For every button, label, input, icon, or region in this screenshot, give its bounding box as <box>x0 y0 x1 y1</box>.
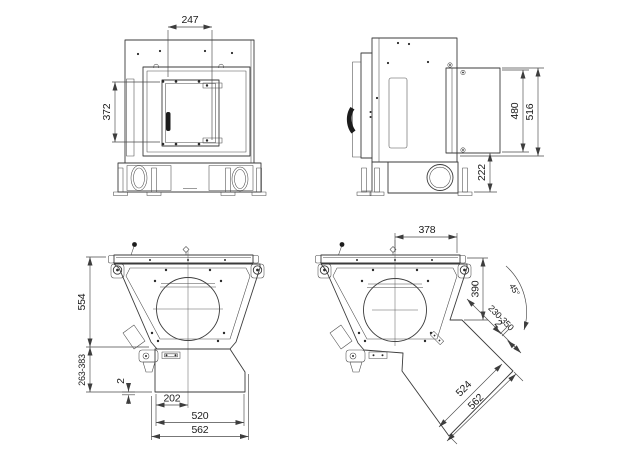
side-body-outline <box>372 38 457 162</box>
dim-label-554: 554 <box>76 293 88 310</box>
door-opening-inner <box>166 84 216 143</box>
dim-duct-center-offset: 202 <box>156 393 188 427</box>
dim-duct-outer-width: 562 <box>152 374 249 440</box>
door-handle <box>166 112 171 131</box>
door-opening-outer <box>162 80 219 146</box>
outlet-duct <box>155 349 245 392</box>
door-handle-side <box>347 107 356 134</box>
dim-duct-inner-width-rotated: 524 <box>439 364 502 427</box>
dim-duct-depth-range: 263-383 <box>77 347 152 392</box>
dim-flange-lip: 2 <box>115 378 135 404</box>
dim-label-520: 520 <box>192 410 209 422</box>
cabinet-outline <box>125 40 254 163</box>
lock-pin <box>131 242 137 255</box>
dim-label-263-383: 263-383 <box>77 354 87 386</box>
back-plate-rotated-view <box>316 255 466 263</box>
dim-label-202: 202 <box>164 393 181 405</box>
side-flap <box>123 325 145 349</box>
dim-label-378: 378 <box>419 224 436 236</box>
back-plate <box>109 255 259 263</box>
side-flap-2 <box>330 325 352 349</box>
front-step <box>361 53 372 158</box>
side-screw-dots <box>370 42 430 118</box>
top-view-rotated: 378 390 45° 230-350 2 524 <box>316 224 527 444</box>
lock-pin-2 <box>339 242 345 255</box>
technical-drawing-page: 247 372 <box>0 0 624 460</box>
dim-label-372: 372 <box>101 103 113 120</box>
dim-housing-outer-height: 516 <box>460 68 544 156</box>
dim-label-562-rotated: 562 <box>466 391 487 412</box>
dim-base-height: 222 <box>463 153 497 192</box>
left-stile <box>127 79 135 156</box>
dim-front-opening-height: 372 <box>101 82 160 142</box>
corner-hinges-2 <box>318 264 471 278</box>
rear-housing <box>446 68 500 153</box>
handle-plate-2 <box>369 352 387 359</box>
dim-label-390: 390 <box>470 280 482 297</box>
flange-tag <box>430 331 443 344</box>
drawing-canvas: 247 372 <box>0 0 624 460</box>
dim-label-524: 524 <box>454 378 475 399</box>
front-feet <box>114 168 267 196</box>
corner-hinges <box>111 264 264 278</box>
dim-label-516: 516 <box>524 103 536 120</box>
top-view-straight: 554 263-383 2 202 520 <box>76 242 264 440</box>
dim-label-247: 247 <box>182 14 199 26</box>
base-assembly <box>118 163 261 192</box>
dim-center-to-corner: 378 <box>395 224 457 253</box>
dim-front-opening-width: 247 <box>168 14 212 140</box>
dim-label-480: 480 <box>509 102 521 119</box>
dim-label-562: 562 <box>192 424 209 436</box>
dim-label-222: 222 <box>476 164 488 181</box>
side-feet <box>357 168 472 196</box>
bottom-port-panel <box>362 162 458 193</box>
side-view: 480 516 222 <box>347 38 544 196</box>
front-view: 247 372 <box>101 14 266 196</box>
panel-screw-dots <box>137 50 233 55</box>
latch-bracket-2 <box>346 350 365 372</box>
handle-plate <box>162 352 180 359</box>
recessed-panel <box>389 78 407 148</box>
dim-body-depth: 554 <box>76 257 149 347</box>
volute-body <box>114 264 260 349</box>
dim-label-lip-2: 2 <box>115 378 127 384</box>
